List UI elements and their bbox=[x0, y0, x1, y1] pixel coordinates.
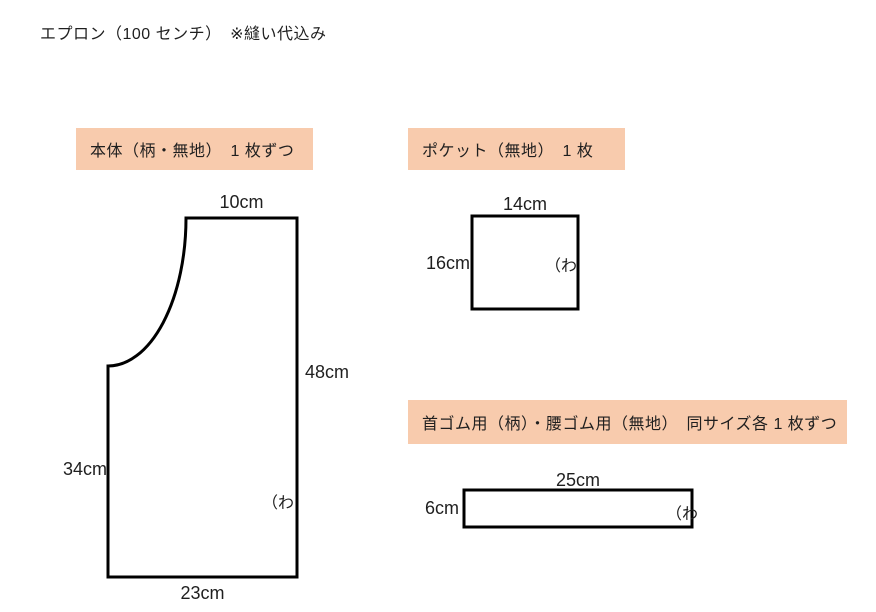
pocket-left-height-label: 16cm bbox=[410, 253, 470, 274]
pattern-sheet: エプロン（100 センチ） ※縫い代込み 本体（柄・無地） 1 枚ずつ ポケット… bbox=[0, 0, 876, 612]
strap-top-width-label: 25cm bbox=[464, 470, 692, 491]
body-top-width-label: 10cm bbox=[186, 192, 297, 213]
strap-fold-mark: （わ bbox=[666, 500, 698, 524]
pocket-top-width-label: 14cm bbox=[472, 194, 578, 215]
apron-body-outline bbox=[108, 218, 297, 577]
body-bottom-width-label: 23cm bbox=[108, 583, 297, 604]
body-fold-mark: （わ bbox=[262, 489, 294, 513]
pocket-fold-mark: （わ bbox=[545, 252, 577, 276]
body-left-height-label: 34cm bbox=[45, 459, 107, 480]
body-right-height-label: 48cm bbox=[305, 362, 349, 383]
strap-outline bbox=[464, 490, 692, 527]
strap-left-height-label: 6cm bbox=[400, 498, 459, 519]
pattern-diagram bbox=[0, 0, 876, 612]
